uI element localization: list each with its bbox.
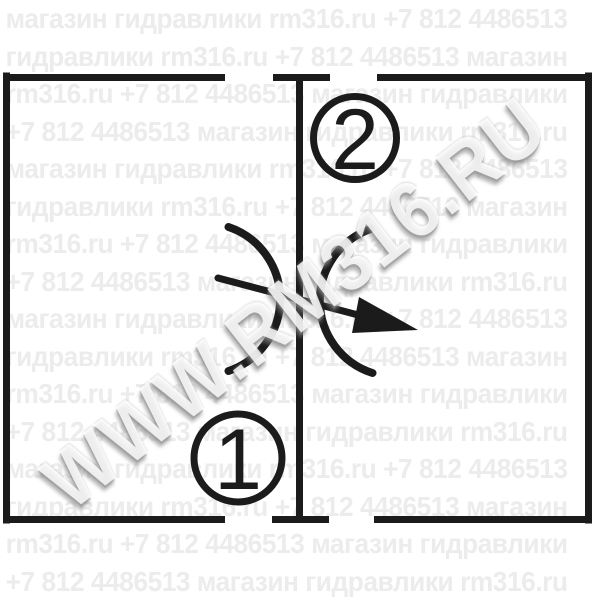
port-2-label: 2: [331, 92, 379, 188]
schematic-image: магазин гидравлики rm316.ru +7 812 44865…: [0, 0, 600, 600]
adjustment-arrow-line: [218, 278, 362, 316]
adjustment-arrow-head: [352, 297, 418, 333]
port-1-label: 1: [214, 412, 262, 508]
throttle-arc-left: [229, 227, 281, 371]
valve-symbol: 2 1: [0, 0, 600, 600]
